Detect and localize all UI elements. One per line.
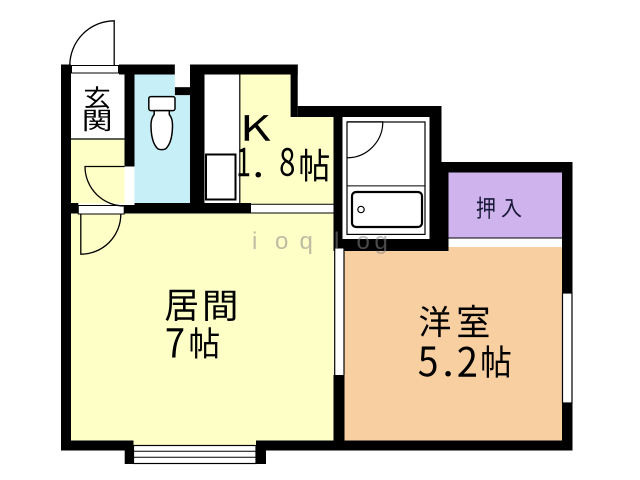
svg-text:i: i	[252, 228, 257, 255]
svg-text:g: g	[375, 228, 388, 255]
svg-text:l: l	[334, 228, 339, 255]
svg-text:q: q	[300, 228, 313, 255]
svg-text:o: o	[357, 228, 370, 255]
svg-text:o: o	[275, 228, 288, 255]
